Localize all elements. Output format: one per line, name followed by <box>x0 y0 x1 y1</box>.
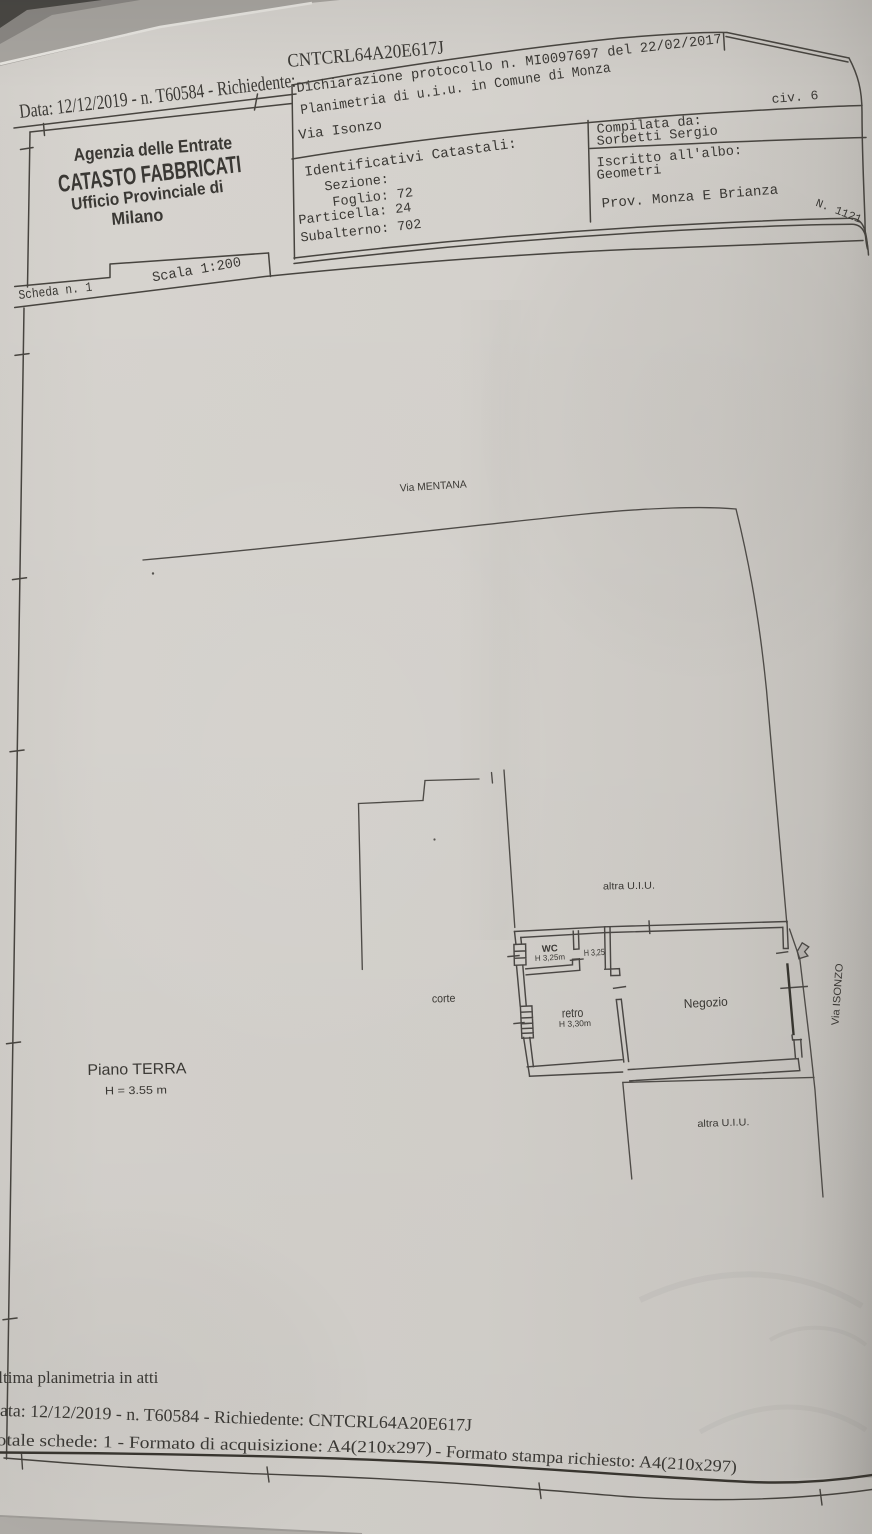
svg-text:corte: corte <box>432 993 456 1006</box>
svg-text:H 3,30m: H 3,30m <box>559 1018 591 1029</box>
svg-text:H 3,25m: H 3,25m <box>535 952 566 963</box>
svg-text:altra U.I.U.: altra U.I.U. <box>603 881 655 893</box>
svg-text:altra U.I.U.: altra U.I.U. <box>697 1117 749 1130</box>
svg-text:H = 3.55 m: H = 3.55 m <box>105 1084 167 1097</box>
svg-text:Negozio: Negozio <box>683 995 728 1011</box>
svg-text:H 3,25: H 3,25 <box>584 947 605 958</box>
svg-text:Ultima planimetria in atti: Ultima planimetria in atti <box>0 1368 159 1387</box>
svg-text:Piano TERRA: Piano TERRA <box>87 1060 187 1079</box>
